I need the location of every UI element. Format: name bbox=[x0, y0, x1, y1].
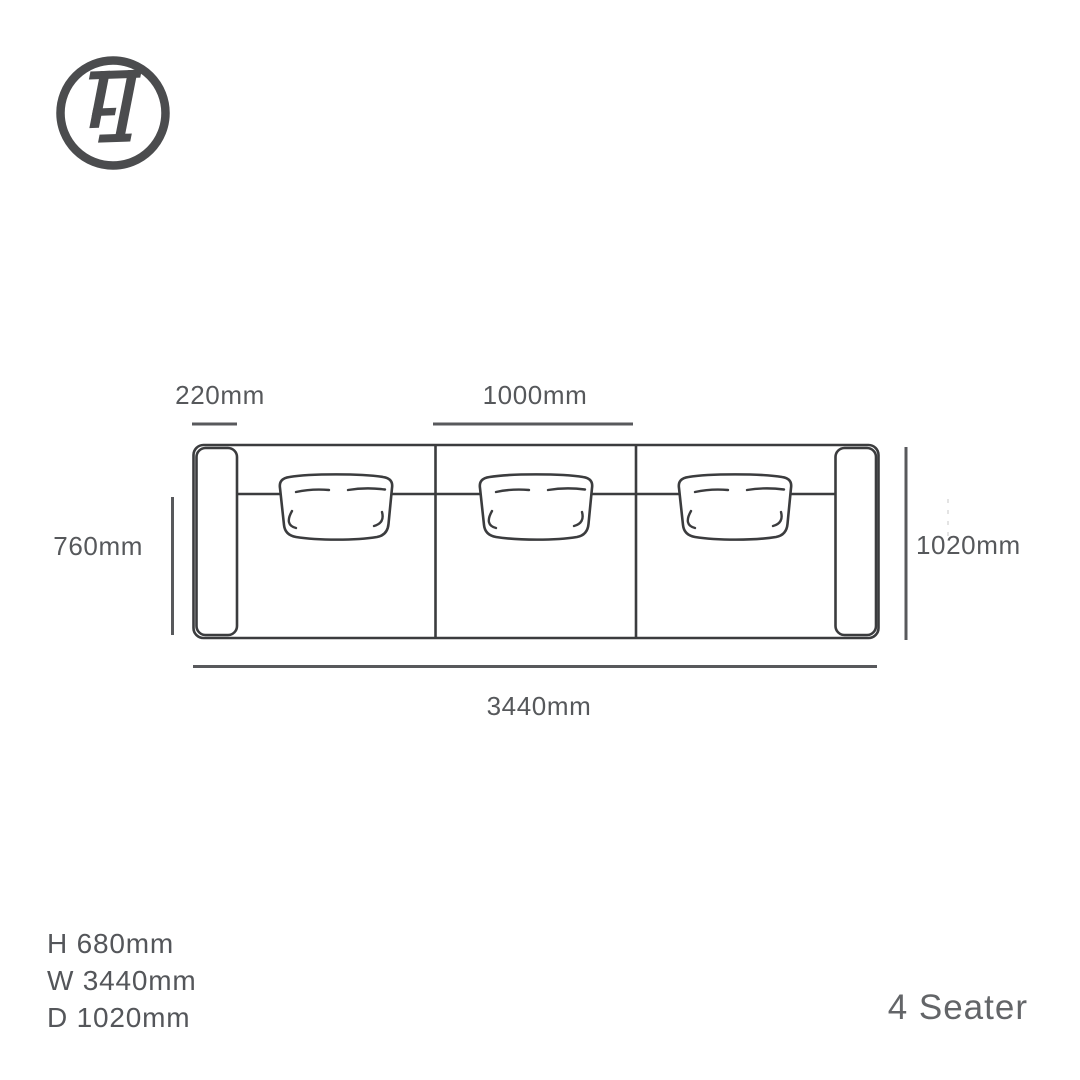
armrest-right bbox=[836, 448, 877, 635]
spec-height: H 680mm bbox=[47, 925, 197, 962]
back-cushion-2 bbox=[480, 474, 592, 539]
spec-width: W 3440mm bbox=[47, 962, 197, 999]
spec-block: H 680mm W 3440mm D 1020mm bbox=[47, 925, 197, 1036]
spec-depth: D 1020mm bbox=[47, 999, 197, 1036]
variant-label: 4 Seater bbox=[888, 988, 1028, 1028]
page-root: 220mm 1000mm 760mm 1020mm 3440mm H 680mm… bbox=[0, 0, 1080, 1080]
dimension-label-overall-depth: 1020mm bbox=[916, 530, 1021, 560]
dimension-label-seat-width: 1000mm bbox=[475, 380, 595, 410]
armrest-left bbox=[197, 448, 238, 635]
dimension-label-overall-width: 3440mm bbox=[479, 691, 599, 721]
back-cushion-1 bbox=[280, 474, 392, 539]
dimension-label-arm-width: 220mm bbox=[160, 380, 280, 410]
back-cushion-3 bbox=[679, 474, 791, 539]
dimension-label-seat-depth: 760mm bbox=[23, 531, 143, 561]
